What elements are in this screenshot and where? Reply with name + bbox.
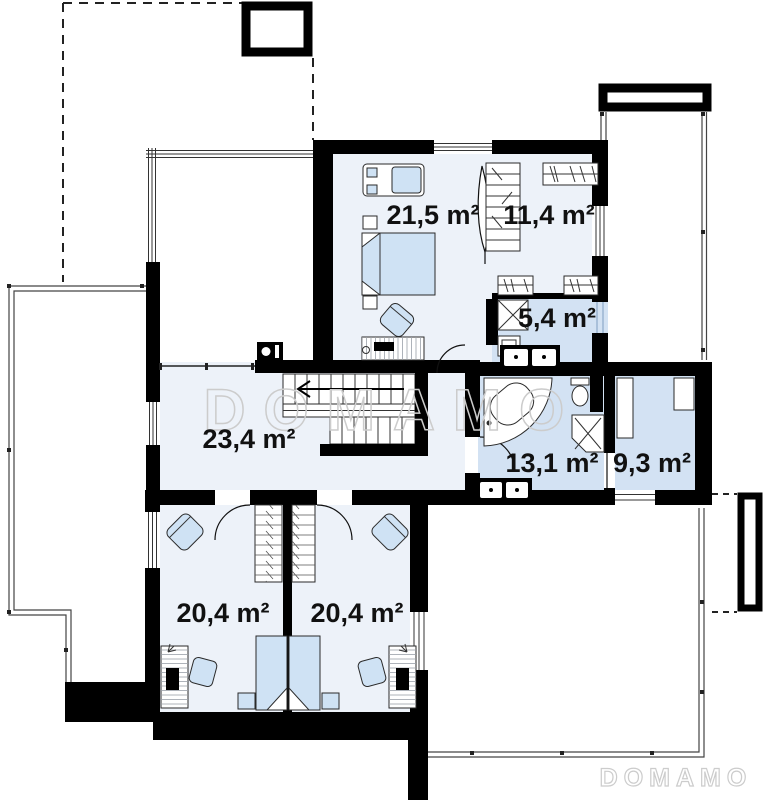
room-label-wardrobe: 11,4 m² xyxy=(503,200,595,230)
door-opening-bedroom-right xyxy=(317,490,352,505)
room-label-bedroom-left: 20,4 m² xyxy=(176,598,269,628)
room-label-bedroom-right: 20,4 m² xyxy=(310,598,403,628)
clothes-rack xyxy=(498,276,533,295)
window-top xyxy=(434,140,492,154)
desk xyxy=(389,644,416,708)
nightstand xyxy=(238,693,255,709)
double-sink-vanity xyxy=(500,345,560,370)
nightstand xyxy=(363,296,377,309)
nightstand xyxy=(322,693,339,709)
room-label-bath-small: 5,4 m² xyxy=(518,303,596,333)
bed-double xyxy=(362,233,435,295)
desk xyxy=(362,337,424,360)
wardrobe-shelf xyxy=(617,378,633,438)
wardrobe xyxy=(255,505,282,582)
bed-single xyxy=(289,636,320,710)
window-hall-left xyxy=(146,402,160,445)
wardrobe-shelf xyxy=(674,378,694,410)
room-label-closet: 9,3 m² xyxy=(613,448,691,478)
window-void-left xyxy=(146,148,158,262)
window-bedroom-left xyxy=(145,512,160,568)
room-label-hall: 23,4 m² xyxy=(202,424,295,454)
window-void-top xyxy=(146,148,313,160)
watermark-corner: DOMAMO xyxy=(600,764,753,792)
chimney-right xyxy=(741,496,759,608)
floor-plan: DOMAMO DOMAMO 21,5 m² 11,4 m² 5,4 m² 23,… xyxy=(0,0,764,800)
door-opening-bedroom-left xyxy=(215,490,250,505)
double-sink-vanity xyxy=(476,478,532,502)
room-label-bath-main: 13,1 m² xyxy=(505,448,598,478)
clothes-rack xyxy=(564,276,598,295)
desk xyxy=(161,644,188,708)
room-label-bedroom-top: 21,5 m² xyxy=(386,200,479,230)
terrace-door xyxy=(615,490,655,505)
clothes-rack xyxy=(543,163,598,185)
room-void-floor xyxy=(158,160,313,362)
floor-plan-drawing: DOMAMO DOMAMO 21,5 m² 11,4 m² 5,4 m² 23,… xyxy=(0,0,764,800)
balcony-planter xyxy=(603,88,707,107)
bed-single xyxy=(256,636,287,710)
chimney-top xyxy=(246,6,308,52)
vent-block xyxy=(257,342,283,361)
nightstand xyxy=(363,216,377,229)
wardrobe xyxy=(292,505,315,582)
